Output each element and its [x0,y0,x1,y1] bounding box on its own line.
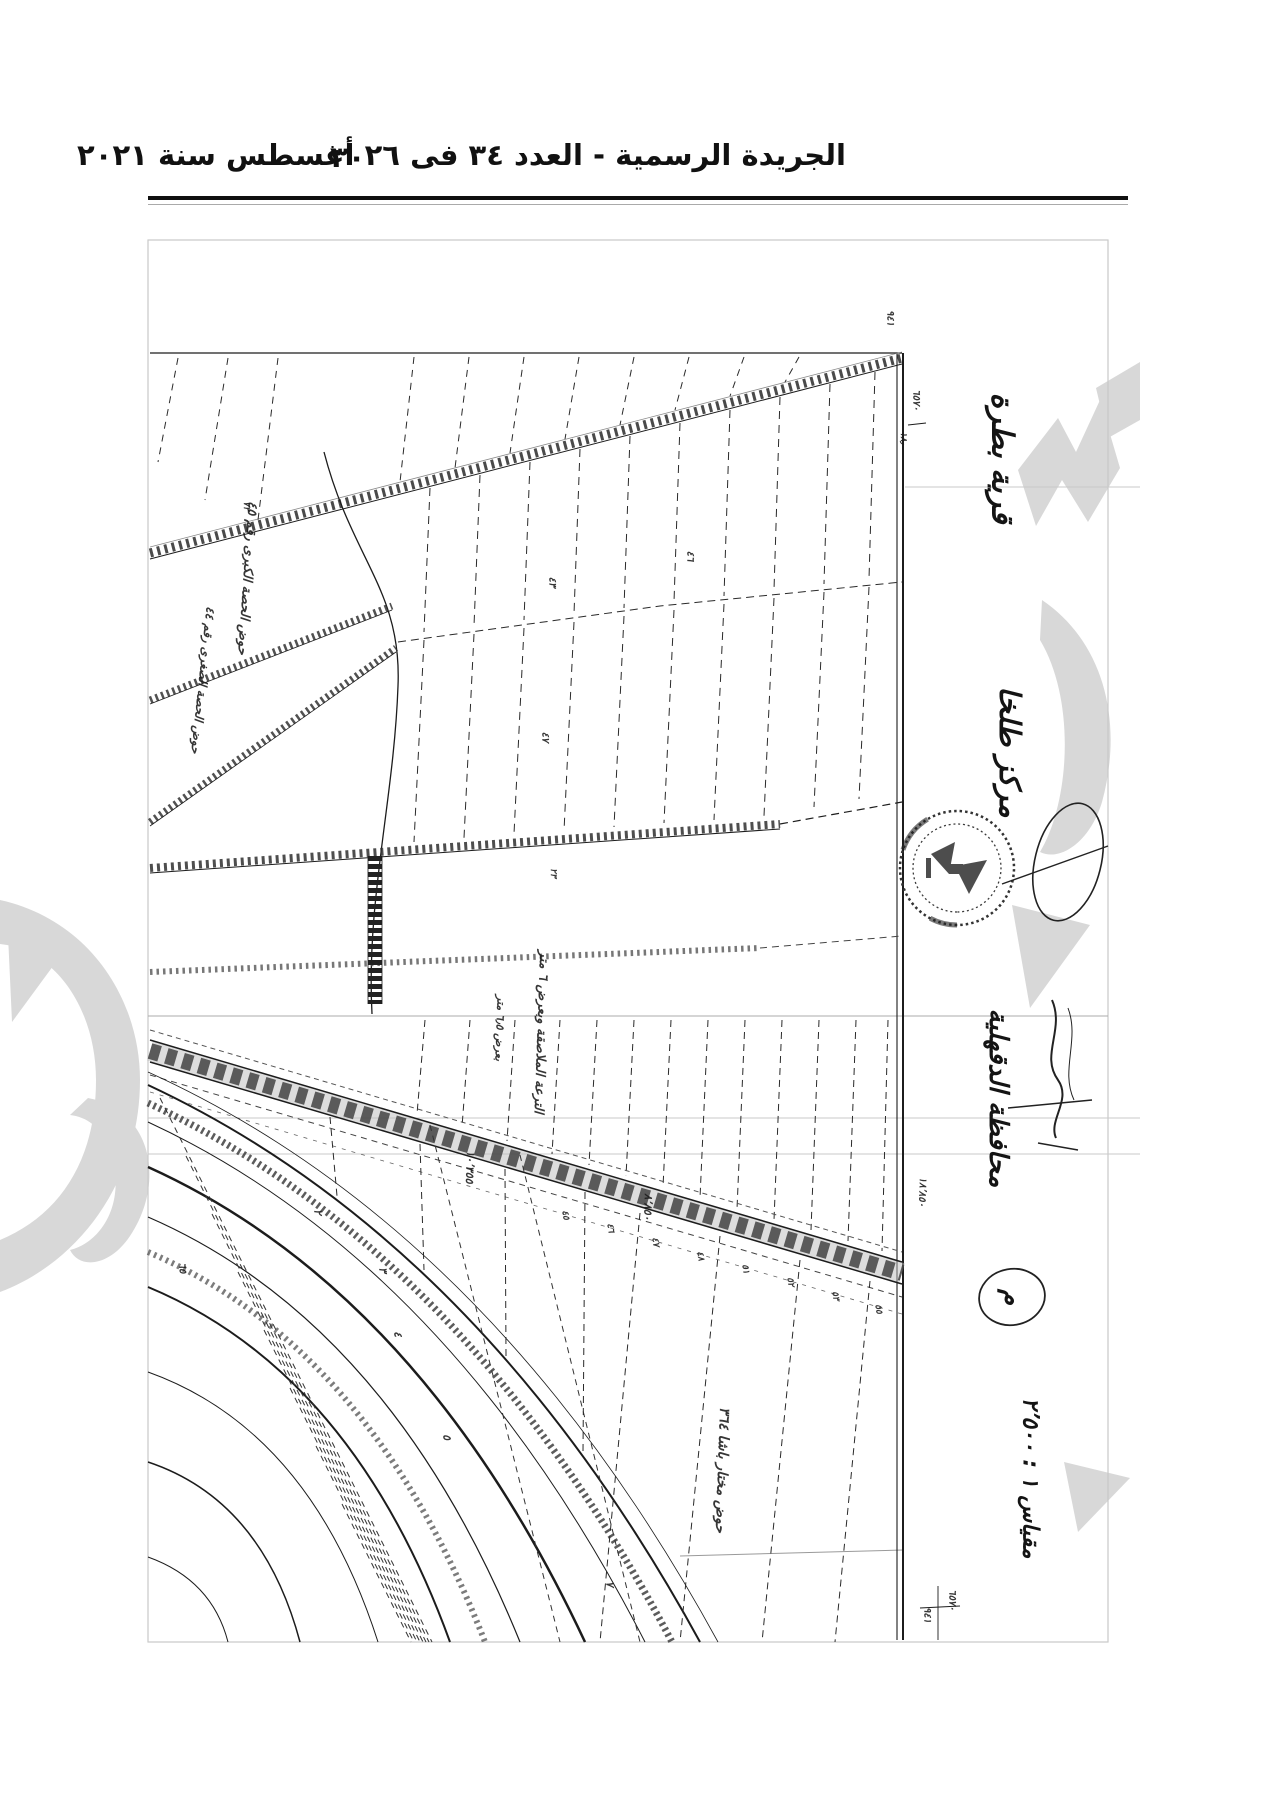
circled-m-letter: م [997,1289,1027,1305]
map-annotation: ٣ [376,1266,389,1273]
margin-label-village: قرية بطرة [985,392,1020,523]
map-annotation: ٦٥ [176,1262,188,1274]
map-annotation: ٥١ [739,1263,751,1274]
survey-map-scan [0,0,1276,1800]
map-annotation: بعرض ٦٫٥ متر [492,995,507,1062]
map-annotation: ٦٥٧٠ [947,1589,958,1610]
margin-label-scale: مقياس ١ : ٢٬٥٠٠ [1018,1398,1043,1559]
map-annotation: ١٨٬٨٥٠ [916,1177,928,1207]
map-annotation: ٥٥ [872,1303,884,1314]
map-annotation: ٩٤١ [922,1607,933,1623]
map-annotation: ٤٨ [694,1250,706,1261]
survey-ticks [908,423,960,1640]
map-annotation: ٤٥ [559,1209,571,1220]
margin-label-governorate: محافظة الدقهلية [983,1009,1013,1188]
map-annotation: ٢٣ [548,868,558,878]
map-annotation: ٨٬٨٥٠ [641,1193,655,1221]
map-annotation: ٥ [440,1433,453,1440]
map-annotation: ٤٦ [604,1222,616,1233]
map-annotation: ٤ [391,1330,404,1337]
parcel-lines-top-wedge [158,357,799,520]
map-annotation: ١٠٬٣٥٥ [463,1150,477,1183]
watermark-fragment [0,362,1140,1532]
map-annotation: ١٨٫ [898,432,908,445]
eagle-icon [926,842,987,894]
map-annotation: ٥٢ [784,1276,796,1287]
parcel-lines-below-road [330,1117,870,1642]
map-annotation: ٧ [603,1580,616,1587]
map-annotation: ٩٤١ [885,310,896,326]
map-annotation: ٢ [311,1208,324,1215]
railway-band-middle [150,802,902,1004]
map-annotation: ٦٥٧٠ [911,389,922,410]
map-annotation: ٤٦ [685,551,696,562]
map-annotation: ٤٣ [547,577,558,588]
road-band [150,1030,902,1314]
map-annotation: ٤٧ [540,732,551,743]
curved-bands [148,1072,718,1642]
map-annotation: ٥٣ [829,1290,841,1301]
railway-band-top [150,352,902,559]
official-stamp [900,811,1014,925]
gazette-page: الجريدة الرسمية - العدد ٣٤ فى ٢٦ أغسطس س… [0,0,1276,1800]
map-annotation: ٤٧ [649,1236,661,1247]
parcel-lines-mid [414,372,875,842]
map-annotation: ٧٢ [241,501,251,511]
margin-label-district: مركز طلخا [993,686,1027,818]
hod-boundaries [150,452,902,1014]
